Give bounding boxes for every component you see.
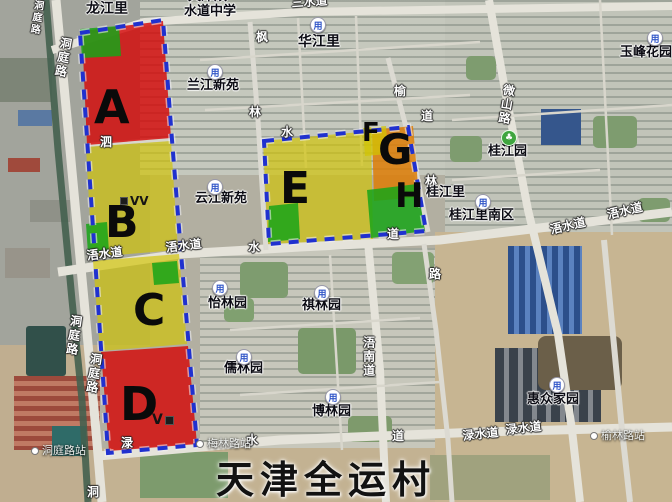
- residence-poi-icon: 用: [207, 64, 223, 80]
- station-dot-icon: [590, 432, 598, 440]
- place-label-博林园: 博林园: [312, 405, 351, 419]
- residence-poi-icon: 用: [310, 17, 326, 33]
- zone-letter-A: A: [94, 86, 130, 130]
- road-char-枫: 枫: [256, 31, 268, 44]
- map-title: 天津全运村: [216, 449, 436, 502]
- place-label-兰江新苑: 兰江新苑: [187, 79, 239, 93]
- zone-letter-E: E: [280, 168, 310, 210]
- station-dot-icon: [31, 447, 39, 455]
- zone-C-green: [152, 261, 179, 285]
- place-label-桂江里南区: 桂江里南区: [449, 209, 514, 223]
- residence-poi-icon: 用: [647, 30, 663, 46]
- road-char-道: 道: [421, 110, 433, 123]
- dark-square-icon: [165, 416, 174, 425]
- place-label-怡林园: 怡林园: [208, 297, 247, 311]
- zone-mark-vv: VV: [120, 194, 149, 208]
- road-char-水: 水: [248, 241, 260, 254]
- road-char-林: 林: [249, 106, 261, 119]
- place-label-龙江里: 龙江里: [86, 2, 128, 17]
- place-label-惠众家园: 惠众家园: [527, 393, 579, 407]
- zone-mark-v: V: [152, 412, 174, 428]
- station-label: 榆林路站: [601, 430, 645, 442]
- residence-poi-icon: 用: [236, 349, 252, 365]
- zone-letter-H: H: [395, 180, 423, 212]
- place-label-玉峰花园: 玉峰花园: [620, 46, 672, 60]
- zone-letter-G: G: [378, 130, 412, 170]
- satellite-map: 三水道浯水道浯水道浯水道浯水道渌水道渌水道浯南道微山路洞庭路洞庭路洞庭路洞庭路泗…: [0, 0, 672, 502]
- road-char-洞: 洞: [87, 486, 99, 499]
- dark-square-icon: [120, 197, 128, 205]
- road-char-路: 路: [429, 268, 441, 281]
- place-label-水道中学: 水道中学: [184, 5, 236, 19]
- residence-poi-icon: 用: [325, 389, 341, 405]
- road-char-道: 道: [387, 228, 399, 241]
- metro-station-榆林路站: 榆林路站: [590, 430, 645, 442]
- road-char-渌: 渌: [121, 437, 133, 450]
- park-tree-icon: ♣: [501, 130, 517, 146]
- residence-poi-icon: 用: [314, 285, 330, 301]
- zone-letter-C: C: [133, 290, 165, 332]
- zone-mark-text: V: [152, 412, 163, 428]
- residence-poi-icon: 用: [475, 194, 491, 210]
- place-label-桂江园: 桂江园: [488, 145, 527, 159]
- road-char-泗: 泗: [100, 136, 112, 149]
- road-char-道: 道: [392, 430, 404, 443]
- road-label-浯南道: 浯南道: [362, 336, 375, 378]
- road-char-水: 水: [281, 126, 293, 139]
- place-label-华江里: 华江里: [298, 35, 340, 50]
- zone-mark-text: VV: [130, 194, 149, 208]
- station-label: 洞庭路站: [42, 445, 86, 457]
- metro-station-洞庭路站: 洞庭路站: [31, 445, 86, 457]
- station-label: 梅林路站: [207, 438, 251, 450]
- residence-poi-icon: 用: [212, 280, 228, 296]
- station-dot-icon: [196, 440, 204, 448]
- zone-letter-B: B: [105, 202, 139, 244]
- place-label-云江新苑: 云江新苑: [195, 192, 247, 206]
- metro-station-梅林路站: 梅林路站: [196, 438, 251, 450]
- place-label-祺林园: 祺林园: [302, 299, 341, 313]
- residence-poi-icon: 用: [549, 377, 565, 393]
- road-char-榆: 榆: [394, 85, 406, 98]
- residence-poi-icon: 用: [207, 179, 223, 195]
- place-label-桂江里: 桂江里: [426, 186, 465, 200]
